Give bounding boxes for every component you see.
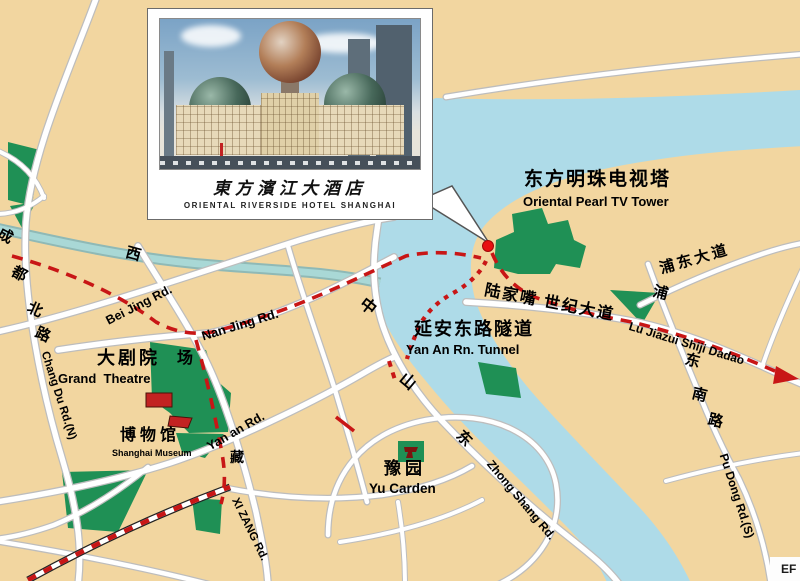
hotel-name-english: ORIENTAL RIVERSIDE HOTEL SHANGHAI: [159, 201, 421, 210]
road-char-zang: 藏: [230, 450, 244, 465]
label-tunnel-zh: 延安东路隧道: [414, 320, 534, 339]
label-grand-theatre-extra: 场: [177, 351, 193, 368]
inset-caption: 東方濱江大酒店 ORIENTAL RIVERSIDE HOTEL SHANGHA…: [159, 174, 421, 210]
route-tunnel-west-end: [389, 361, 395, 380]
label-museum-zh: 博物馆: [120, 428, 180, 445]
label-museum-en: Shanghai Museum: [112, 449, 192, 458]
label-grand-theatre-en: Grand Theatre: [58, 372, 150, 386]
pearl-sphere: [259, 21, 321, 83]
label-yu-garden-en: Yu Carden: [369, 482, 436, 496]
grand-theatre-icon: [146, 393, 172, 407]
hotel-photo: [159, 18, 421, 170]
label-tv-tower-en: Oriental Pearl TV Tower: [523, 195, 669, 209]
hotel-name-calligraphy: 東方濱江大酒店: [159, 174, 421, 199]
hotel-photo-inset: 東方濱江大酒店 ORIENTAL RIVERSIDE HOTEL SHANGHA…: [147, 8, 433, 220]
label-grand-theatre-zh: 大剧院: [97, 349, 160, 368]
corner-mark: EF: [781, 563, 796, 576]
label-tunnel-en: Yan An Rn. Tunnel: [406, 343, 519, 357]
label-yu-garden-zh: 豫园: [384, 460, 426, 478]
shanghai-hotel-map: 東方濱江大酒店 ORIENTAL RIVERSIDE HOTEL SHANGHA…: [0, 0, 800, 581]
label-tv-tower-zh: 东方明珠电视塔: [524, 170, 671, 190]
hotel-park: [494, 208, 586, 274]
hotel-location-dot: [483, 241, 494, 252]
